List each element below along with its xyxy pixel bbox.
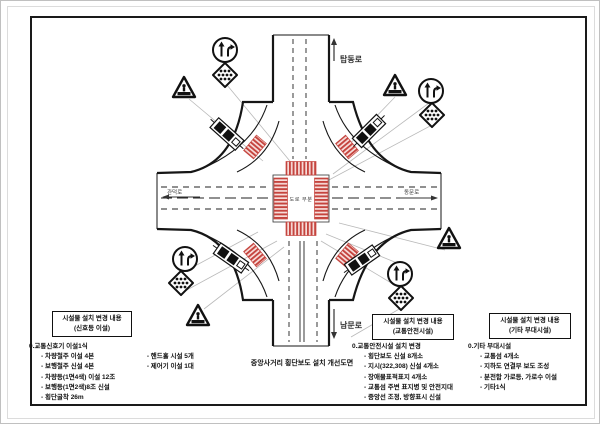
road-label-north: 탑동로	[340, 54, 363, 64]
legend-box-safety: 시설물 설치 변경 내용 (교통안전시설)	[372, 314, 454, 340]
road-label-west: 관덕로	[167, 188, 182, 196]
traffic-signal-head-ne	[349, 111, 389, 151]
legend-box-misc-subtitle: (기타 부대시설)	[492, 326, 568, 336]
crosswalk-ahead-sign-se	[389, 286, 413, 310]
notes-safety-row3: - 장애물표적표지 4개소	[352, 373, 484, 383]
crosswalk-ahead-sign-sw	[169, 271, 193, 295]
crosswalk-warning-sign-se	[438, 228, 460, 248]
crosswalk-warning-sign-nw	[173, 77, 195, 97]
legend-box-signal-title: 시설물 설치 변경 내용	[55, 314, 129, 324]
lane-direction-sign-nw	[213, 38, 237, 62]
crosswalk-east	[315, 178, 329, 219]
road-label-east: 동문로	[404, 189, 419, 196]
legend-box-signal: 시설물 설치 변경 내용 (신호등 이설)	[52, 311, 132, 337]
notes-signal-row3: - 차량등(1면4색) 이설 12조	[29, 373, 219, 383]
junction: 도로 부분	[273, 162, 329, 236]
lane-direction-sign-sw	[173, 247, 197, 271]
lane-direction-sign-ne	[419, 79, 443, 103]
notes-misc-row1: - 교통섬 4개소	[468, 352, 588, 362]
notes-signal-row5: - 횡단굴착 26m	[29, 393, 219, 403]
notes-misc-row4: - 기타1식	[468, 383, 588, 393]
notes-safety: 0.교통안전시설 설치 변경 - 횡단보도 신설 8개소 - 지시(322,30…	[352, 342, 484, 403]
notes-signal-row1a: - 차량철주 이설 4본	[41, 352, 145, 362]
crosswalk-ahead-sign-nw	[213, 63, 237, 87]
crosswalk-warning-sign-ne	[384, 75, 406, 95]
crosswalk-south	[286, 222, 316, 236]
road-label-south: 남문로	[340, 320, 363, 330]
legend-box-safety-title: 시설물 설치 변경 내용	[375, 317, 451, 327]
drawing-page: 도로 부분 탑동로	[0, 0, 600, 424]
crosswalk-west	[274, 178, 288, 219]
notes-signal-row1b: - 핸드홀 시설 5개	[147, 353, 194, 360]
notes-signal: 0.교통신호기 이설1식 - 차량철주 이설 4본 - 핸드홀 시설 5개 - …	[29, 342, 219, 403]
notes-safety-row1: - 횡단보도 신설 8개소	[352, 352, 484, 362]
notes-misc: 0.기타 부대시설 - 교통섬 4개소 - 지하도 연결부 보도 조성 - 분전…	[468, 342, 588, 393]
notes-misc-heading: 0.기타 부대시설	[468, 342, 588, 352]
notes-safety-row5: - 중앙선 조정, 방향표시 신설	[352, 393, 484, 403]
notes-signal-row2a: - 보행철주 신설 4본	[41, 362, 145, 372]
legend-box-safety-subtitle: (교통안전시설)	[375, 327, 451, 337]
notes-safety-row2: - 지시(322,308) 신설 4개소	[352, 362, 484, 372]
legend-box-misc: 시설물 설치 변경 내용 (기타 부대시설)	[489, 313, 571, 339]
lane-direction-sign-se	[388, 262, 412, 286]
notes-signal-heading: 0.교통신호기 이설1식	[29, 342, 219, 352]
notes-safety-row4: - 교통섬 주변 표지병 및 안전지대	[352, 383, 484, 393]
east-arrow-icon	[431, 196, 438, 201]
notes-signal-row2b: - 제어기 이설 1대	[147, 363, 194, 370]
notes-safety-heading: 0.교통안전시설 설치 변경	[352, 342, 484, 352]
notes-misc-row2: - 지하도 연결부 보도 조성	[468, 362, 588, 372]
legend-box-signal-subtitle: (신호등 이설)	[55, 324, 129, 334]
legend-box-misc-title: 시설물 설치 변경 내용	[492, 316, 568, 326]
junction-label: 도로 부분	[289, 196, 312, 203]
notes-signal-row1: - 차량철주 이설 4본 - 핸드홀 시설 5개	[29, 352, 219, 362]
notes-misc-row3: - 분전함 가로등, 가로수 이설	[468, 373, 588, 383]
drawing-title: 중앙사거리 횡단보도 설치 개선도면	[237, 358, 367, 368]
notes-signal-row4: - 보행등(1면2색)8조 신설	[29, 383, 219, 393]
north-arrow-icon	[331, 38, 337, 45]
notes-signal-row2: - 보행철주 신설 4본 - 제어기 이설 1대	[29, 362, 219, 372]
crosswalk-north	[286, 162, 316, 176]
south-arrow-icon	[331, 332, 337, 339]
